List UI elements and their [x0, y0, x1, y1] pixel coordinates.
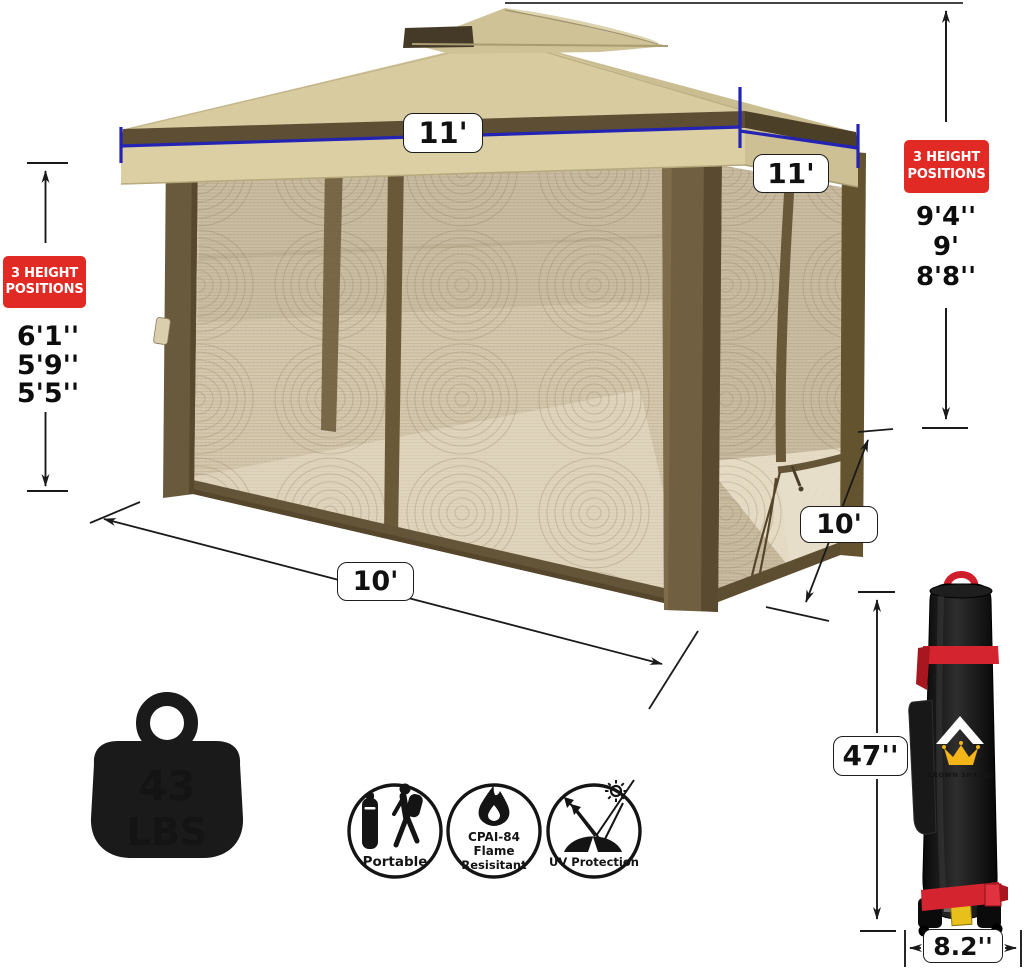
bag-top-strap: [923, 646, 999, 664]
bag-side-pocket: [909, 700, 936, 834]
roof-canopy: [121, 8, 858, 187]
label-side-width: 11': [753, 154, 829, 193]
label-bag-height: 47'': [833, 736, 908, 776]
weight-unit: LBS: [127, 810, 208, 854]
feature-uv-protection: UV Protection: [548, 780, 640, 877]
label-front-width: 10': [337, 562, 414, 601]
height-values-right: 9'4'' 9' 8'8'': [902, 202, 990, 292]
height-positions-badge-right: 3 HEIGHT POSITIONS: [904, 140, 989, 193]
feature-flame-label-3: Resisitant: [461, 858, 527, 872]
feature-uv-label: UV Protection: [549, 855, 639, 869]
bag-handle: [947, 575, 975, 586]
feature-portable-label: Portable: [363, 854, 428, 870]
bag-brand-text: CROWN SHADES: [927, 771, 994, 779]
height-value: 5'9'': [4, 352, 92, 381]
height-value: 9'4'': [902, 202, 990, 232]
carry-bag-illustration: CROWN SHADES: [909, 575, 1008, 937]
label-side-depth: 10': [800, 506, 878, 543]
height-value: 6'1'': [4, 323, 92, 352]
product-dimension-diagram: 43 LBS Portable CPAI-84 Flame Resisitant: [0, 0, 1024, 971]
height-values-left: 6'1'' 5'9'' 5'5'': [4, 323, 92, 409]
height-value: 9': [902, 232, 990, 262]
feature-flame-label-2: Flame: [473, 844, 514, 858]
height-value: 8'8'': [902, 262, 990, 292]
diagram-illustration: 43 LBS Portable CPAI-84 Flame Resisitant: [0, 0, 1024, 971]
feature-flame-resistant: CPAI-84 Flame Resisitant: [448, 785, 540, 877]
weight-icon: 43 LBS: [91, 699, 243, 858]
label-top-width: 11': [403, 113, 483, 153]
gazebo-illustration: [121, 8, 866, 612]
label-bag-width: 8.2'': [923, 929, 1003, 963]
height-value: 5'5'': [4, 380, 92, 409]
height-positions-badge-left: 3 HEIGHT POSITIONS: [3, 256, 86, 308]
feature-flame-label-1: CPAI-84: [468, 830, 520, 844]
feature-portable: Portable: [349, 784, 441, 878]
weight-value: 43: [138, 762, 195, 810]
